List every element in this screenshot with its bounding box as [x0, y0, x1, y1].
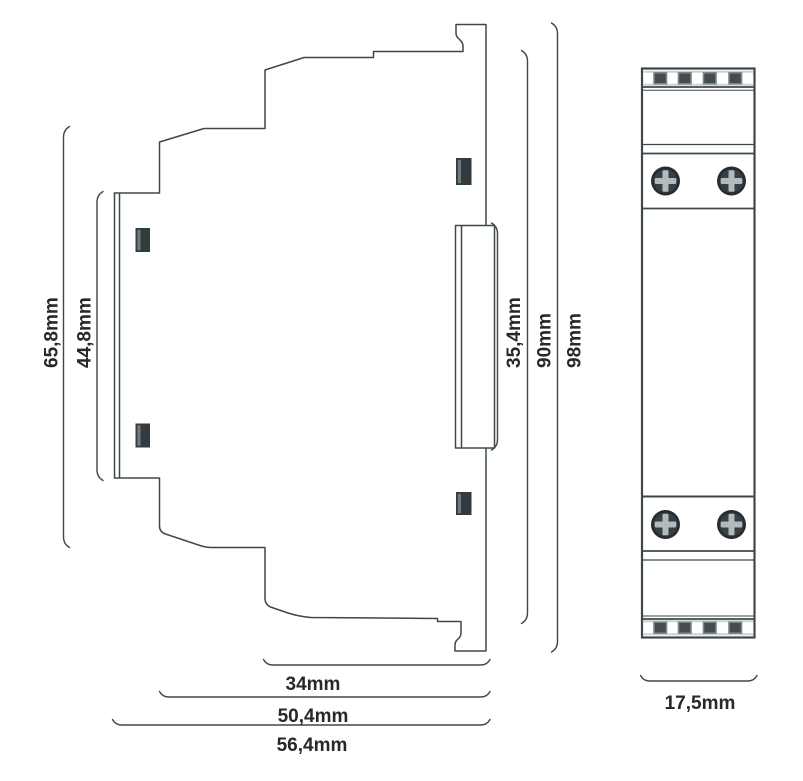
dimension-labels: 65,8mm 44,8mm 35,4mm 90mm 98mm 34mm 50,4…	[42, 297, 736, 756]
terminal-square	[704, 73, 717, 84]
dim-label-front-face-height: 35,4mm	[504, 297, 525, 368]
screw-top-right	[717, 167, 746, 196]
dim-label-module-width: 17,5mm	[665, 693, 736, 714]
dim-line-front-depth	[264, 660, 491, 666]
dim-label-front-depth: 34mm	[286, 674, 341, 695]
side-view-clips	[136, 158, 472, 515]
dimension-drawing: 65,8mm 44,8mm 35,4mm 90mm 98mm 34mm 50,4…	[0, 0, 803, 781]
side-view-outline-upper	[115, 25, 487, 226]
terminal-square	[679, 622, 692, 633]
terminal-square	[654, 622, 667, 633]
terminal-square	[729, 622, 742, 633]
dim-label-rear-section-height: 65,8mm	[42, 297, 63, 368]
side-view-outline-lower	[115, 193, 487, 651]
dim-label-body-height: 90mm	[535, 313, 556, 368]
dim-label-mid-depth: 50,4mm	[278, 706, 349, 727]
drawing-canvas: 65,8mm 44,8mm 35,4mm 90mm 98mm 34mm 50,4…	[0, 0, 803, 781]
screw-bottom-left	[651, 510, 680, 539]
dim-label-total-height: 98mm	[565, 313, 586, 368]
clip-front-bottom	[456, 492, 472, 515]
terminal-square	[704, 622, 717, 633]
side-view	[115, 25, 495, 652]
dim-line-din-area-height	[97, 192, 103, 481]
dim-line-rear-section-height	[64, 127, 70, 548]
dim-label-total-depth: 56,4mm	[277, 735, 348, 756]
screw-bottom-right	[717, 510, 746, 539]
dim-label-din-area-height: 44,8mm	[75, 297, 96, 368]
screw-top-left	[651, 167, 680, 196]
dim-line-module-width	[641, 676, 758, 682]
clip-rear-bottom	[136, 424, 151, 448]
terminal-square	[729, 73, 742, 84]
front-view	[642, 69, 755, 638]
clip-rear-top	[136, 228, 151, 252]
terminal-square	[679, 73, 692, 84]
terminal-square	[654, 73, 667, 84]
clip-front-top	[456, 158, 472, 185]
